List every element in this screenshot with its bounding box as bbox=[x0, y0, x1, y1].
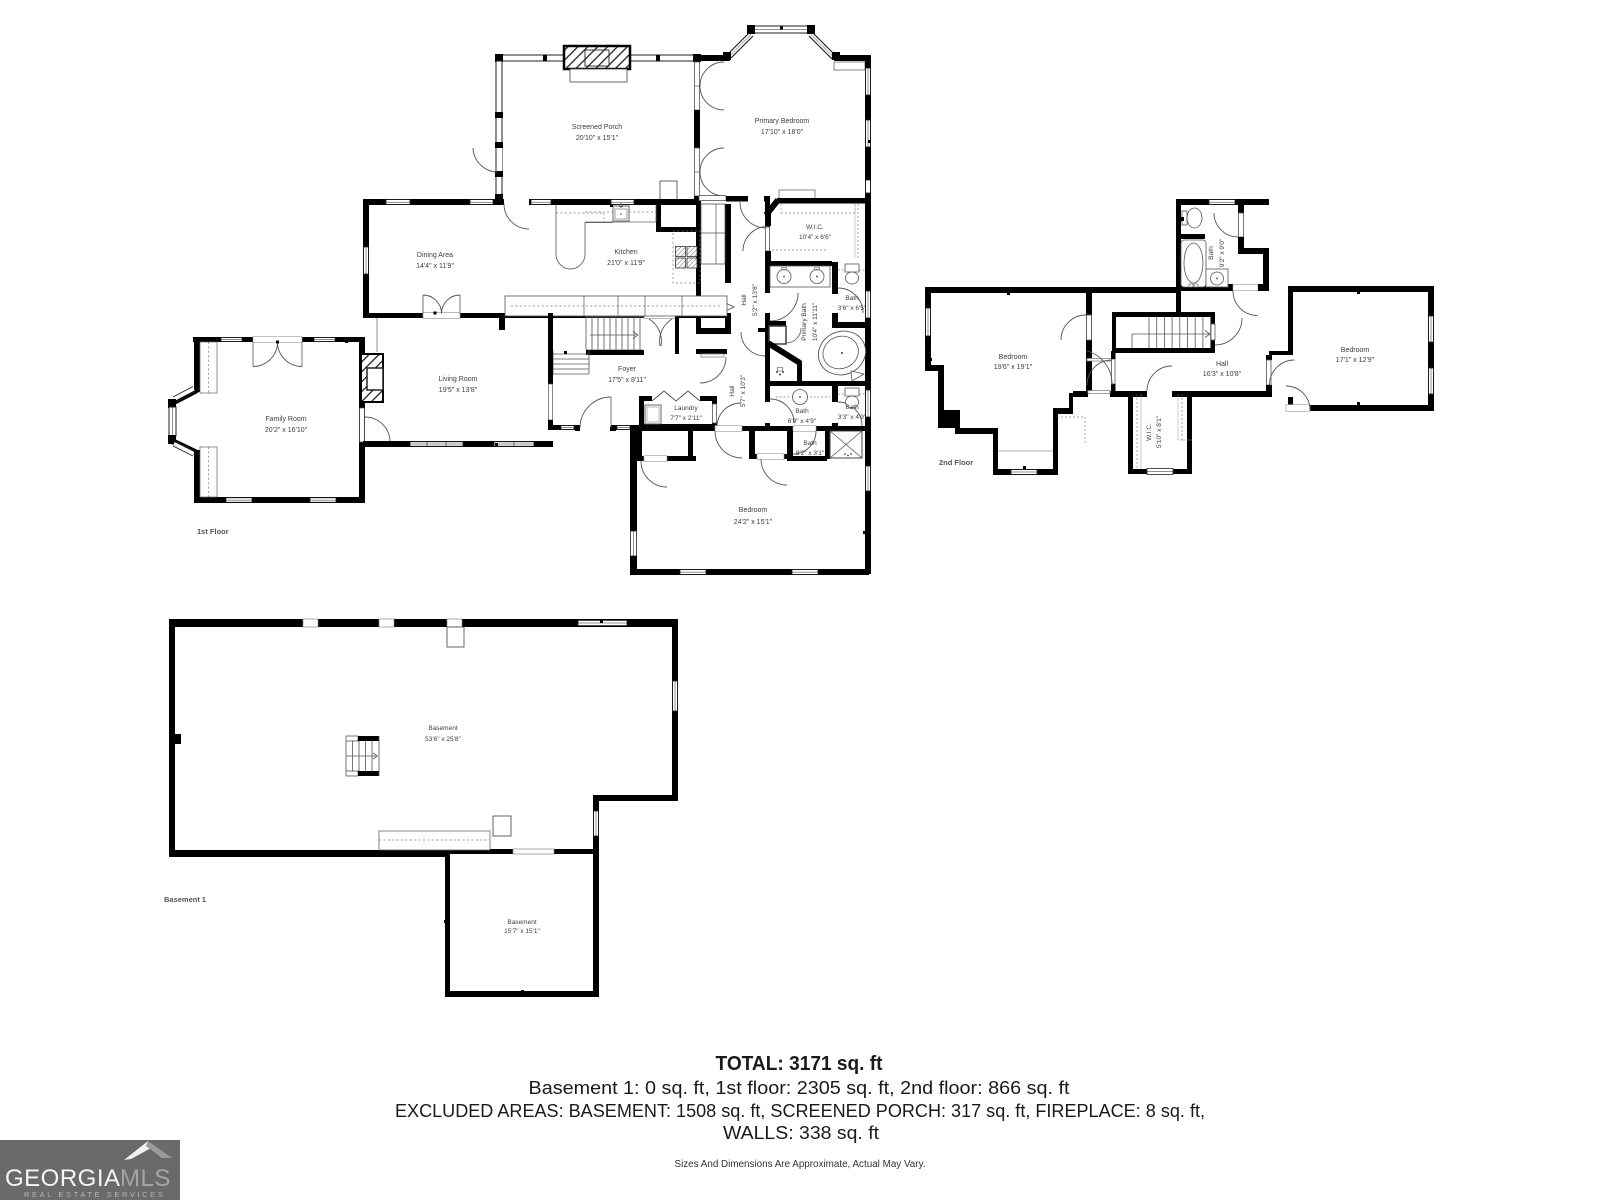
svg-text:3'3" x 4'9": 3'3" x 4'9" bbox=[838, 414, 867, 421]
svg-text:EXCLUDED AREAS: BASEMENT: 1508: EXCLUDED AREAS: BASEMENT: 1508 sq. ft, S… bbox=[395, 1101, 1205, 1121]
svg-text:10'4" x 11'11": 10'4" x 11'11" bbox=[812, 302, 819, 341]
svg-text:24'2" x 15'1": 24'2" x 15'1" bbox=[734, 519, 773, 526]
svg-text:Basement: Basement bbox=[428, 725, 457, 732]
svg-text:Bedroom: Bedroom bbox=[999, 354, 1028, 361]
svg-text:WALLS: 338 sq. ft: WALLS: 338 sq. ft bbox=[723, 1123, 879, 1143]
svg-text:Basement 1: 0 sq. ft, 1st floo: Basement 1: 0 sq. ft, 1st floor: 2305 sq… bbox=[529, 1078, 1070, 1098]
svg-text:8'2" x 3'1": 8'2" x 3'1" bbox=[796, 450, 825, 457]
svg-text:1st Floor: 1st Floor bbox=[197, 527, 229, 536]
svg-text:20'2" x 16'10": 20'2" x 16'10" bbox=[265, 427, 308, 434]
svg-text:10'4" x 6'6": 10'4" x 6'6" bbox=[799, 234, 832, 241]
svg-text:Bedroom: Bedroom bbox=[1341, 347, 1370, 354]
svg-text:9'2" x 9'0": 9'2" x 9'0" bbox=[1219, 238, 1226, 267]
svg-text:19'5" x 13'8": 19'5" x 13'8" bbox=[439, 387, 478, 394]
svg-text:Hall: Hall bbox=[741, 294, 748, 306]
svg-text:Living Room: Living Room bbox=[439, 376, 478, 383]
svg-text:Hall: Hall bbox=[1216, 361, 1229, 368]
svg-text:7'7" x 2'11": 7'7" x 2'11" bbox=[670, 415, 702, 422]
svg-text:Primary Bedroom: Primary Bedroom bbox=[755, 118, 810, 125]
svg-text:3'6" x 6'5": 3'6" x 6'5" bbox=[838, 305, 867, 312]
svg-text:W.I.C.: W.I.C. bbox=[1146, 423, 1153, 441]
svg-text:2nd Floor: 2nd Floor bbox=[939, 458, 973, 467]
svg-text:Foyer: Foyer bbox=[618, 366, 637, 373]
svg-text:17'1" x 12'9": 17'1" x 12'9" bbox=[1336, 357, 1375, 364]
svg-text:W.I.C.: W.I.C. bbox=[806, 224, 824, 231]
svg-text:Family Room: Family Room bbox=[265, 416, 306, 423]
svg-text:Bath: Bath bbox=[1208, 246, 1215, 260]
svg-text:Basement 1: Basement 1 bbox=[164, 895, 206, 904]
svg-text:21'0" x 11'9": 21'0" x 11'9" bbox=[607, 260, 645, 267]
svg-text:17'5" x 8'11": 17'5" x 8'11" bbox=[608, 377, 646, 384]
svg-text:14'4" x 11'9": 14'4" x 11'9" bbox=[416, 263, 454, 270]
svg-text:Bath: Bath bbox=[845, 404, 859, 411]
svg-text:19'6" x 19'1": 19'6" x 19'1" bbox=[994, 364, 1033, 371]
svg-text:Bath: Bath bbox=[845, 295, 859, 302]
svg-text:53'6" x 25'8": 53'6" x 25'8" bbox=[425, 736, 461, 743]
svg-text:Sizes And Dimensions Are Appro: Sizes And Dimensions Are Approximate, Ac… bbox=[675, 1159, 926, 1170]
svg-text:5'10" x 8'1": 5'10" x 8'1" bbox=[1156, 415, 1163, 448]
svg-text:16'3" x 10'8": 16'3" x 10'8" bbox=[1203, 371, 1242, 378]
svg-text:15'7" x 15'1": 15'7" x 15'1" bbox=[504, 928, 540, 935]
svg-text:Dining Area: Dining Area bbox=[417, 252, 453, 259]
svg-text:Bath: Bath bbox=[795, 408, 809, 415]
svg-text:Bath: Bath bbox=[803, 440, 817, 447]
svg-text:Kitchen: Kitchen bbox=[614, 249, 637, 256]
svg-text:Screened Porch: Screened Porch bbox=[572, 124, 622, 131]
svg-text:GEORGIA: GEORGIA bbox=[5, 1165, 121, 1192]
svg-text:REAL ESTATE SERVICES: REAL ESTATE SERVICES bbox=[24, 1190, 165, 1199]
svg-text:6'9" x 4'9": 6'9" x 4'9" bbox=[788, 418, 817, 425]
svg-text:Basement: Basement bbox=[507, 919, 536, 926]
svg-text:MLS: MLS bbox=[120, 1165, 171, 1192]
svg-text:TOTAL: 3171 sq. ft: TOTAL: 3171 sq. ft bbox=[716, 1053, 883, 1075]
svg-text:17'10" x 18'0": 17'10" x 18'0" bbox=[761, 129, 804, 136]
svg-text:5'2" x 13'8": 5'2" x 13'8" bbox=[752, 283, 759, 316]
svg-text:Primary Bath: Primary Bath bbox=[801, 303, 808, 341]
svg-text:20'10" x 15'1": 20'10" x 15'1" bbox=[576, 135, 619, 142]
svg-text:Hall: Hall bbox=[729, 385, 736, 397]
svg-text:Laundry: Laundry bbox=[674, 405, 698, 412]
svg-text:5'7" x 10'3": 5'7" x 10'3" bbox=[740, 374, 747, 407]
svg-text:Bedroom: Bedroom bbox=[739, 507, 768, 514]
